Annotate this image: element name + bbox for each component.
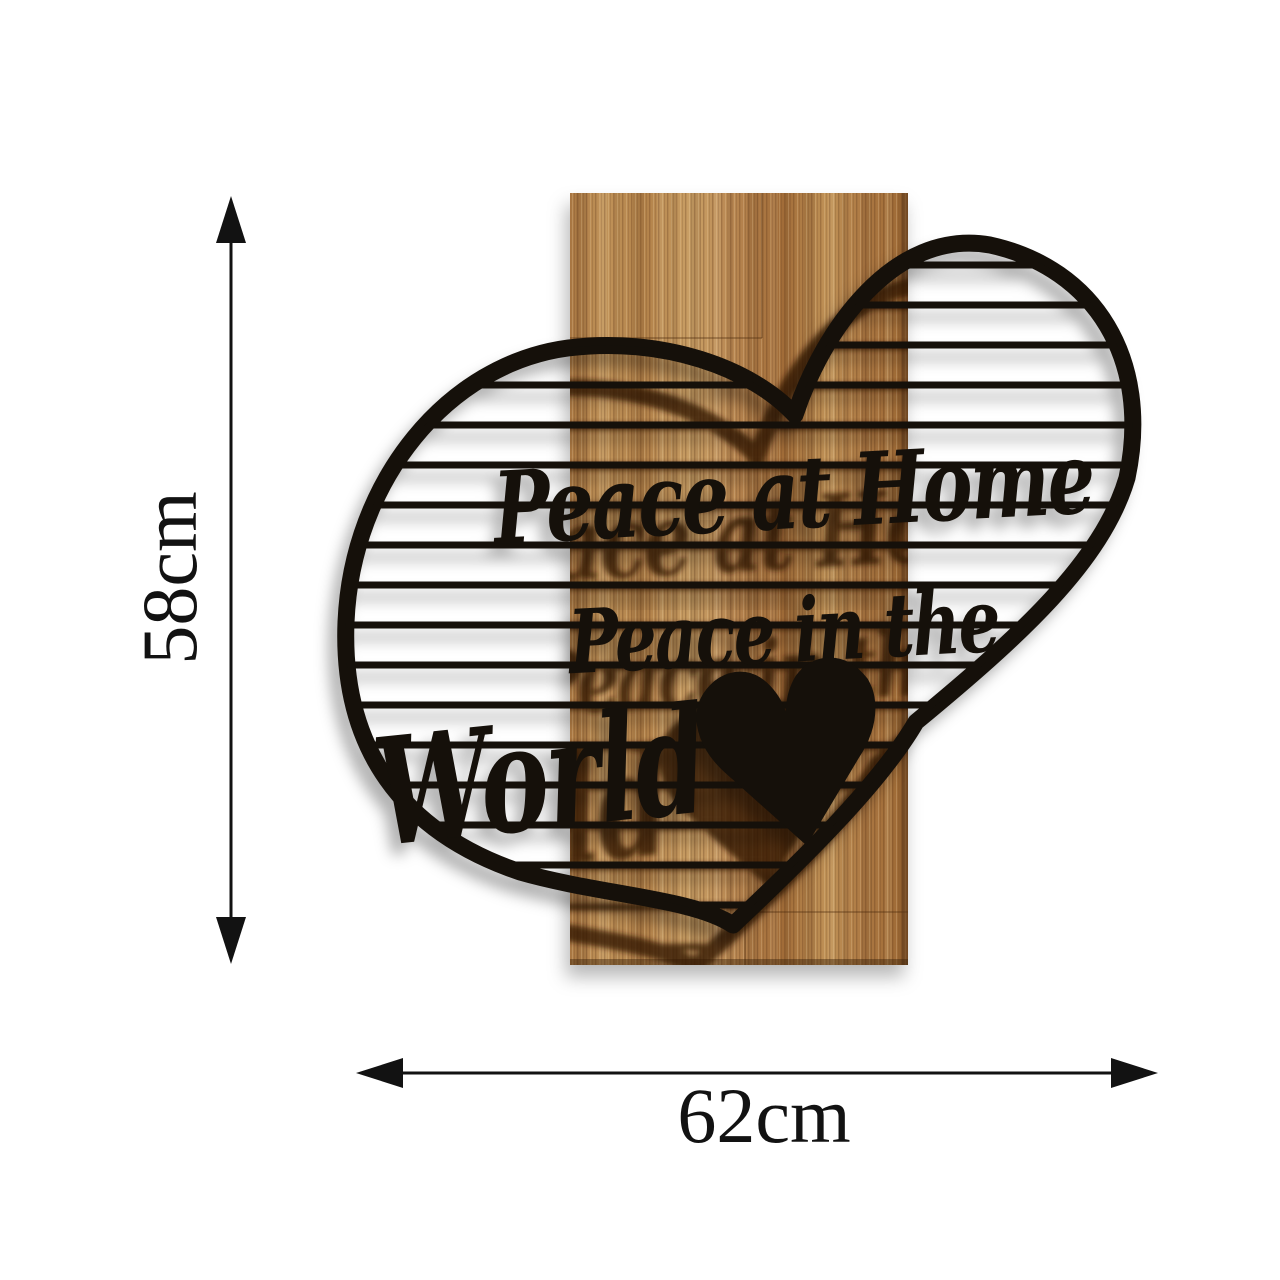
width-label: 62cm xyxy=(677,1072,850,1159)
arrow-left-icon xyxy=(356,1058,403,1088)
arrow-right-icon xyxy=(1111,1058,1158,1088)
height-label: 58cm xyxy=(126,491,213,664)
product-dimension-image: Peace at Home Peace in the World ♥ 58cm xyxy=(0,0,1280,1280)
arrow-up-icon xyxy=(216,196,246,243)
arrow-down-icon xyxy=(216,917,246,964)
artwork-canvas: Peace at Home Peace in the World ♥ 58cm xyxy=(0,0,1280,1280)
wood-plank-bottom-edge xyxy=(570,959,908,965)
width-dimension: 62cm xyxy=(356,1058,1158,1159)
height-dimension: 58cm xyxy=(126,196,246,964)
